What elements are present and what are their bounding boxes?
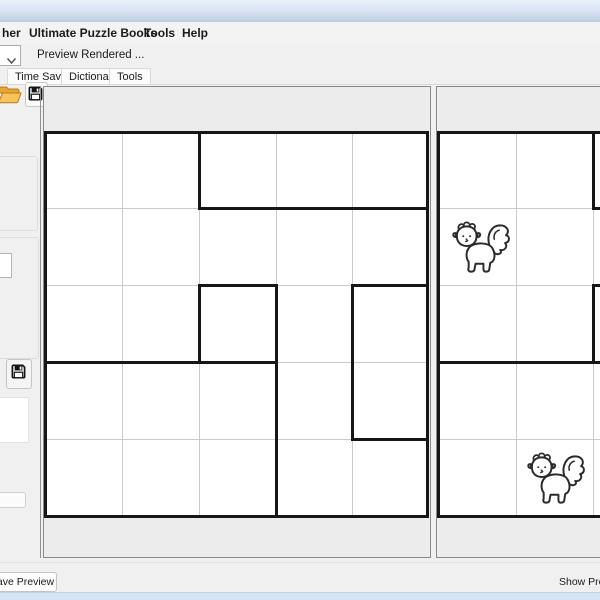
cage-border <box>437 131 600 134</box>
sidebar-groupbox-top <box>0 156 38 231</box>
left-puzzle-panel[interactable] <box>43 86 431 558</box>
sidebar-input[interactable] <box>0 253 12 278</box>
grid-line <box>438 208 600 209</box>
save-preview-button[interactable]: Save Preview <box>0 572 57 592</box>
cat-clipart <box>448 215 511 279</box>
menu-bar: her Ultimate Puzzle Books Tools Help <box>0 22 600 44</box>
grid-outer-border <box>44 131 429 518</box>
preview-rendered-label: Preview Rendered ... <box>37 44 144 66</box>
right-puzzle-panel[interactable] <box>436 86 600 558</box>
grid-line <box>516 132 517 516</box>
open-folder-button[interactable] <box>0 84 22 105</box>
sidebar-listbox[interactable] <box>0 397 29 443</box>
cage-border <box>437 515 600 518</box>
cage-border <box>437 131 440 518</box>
show-preview-button[interactable]: Show Preview <box>550 572 600 592</box>
cat-drawing <box>523 445 586 511</box>
status-strip <box>0 592 600 600</box>
bottom-divider <box>0 562 600 563</box>
cat-drawing <box>448 215 511 279</box>
preset-combobox[interactable] <box>0 45 21 66</box>
menu-item-publisher[interactable]: her <box>0 22 25 44</box>
sidebar-save-icon <box>10 362 27 381</box>
menu-item-help[interactable]: Help <box>178 22 212 44</box>
right-grid-canvas[interactable] <box>437 87 600 557</box>
cat-clipart <box>523 445 586 511</box>
save-icon <box>27 84 44 103</box>
cage-border <box>592 207 600 210</box>
sidebar-splitter[interactable] <box>40 86 41 558</box>
sidebar-small-button[interactable] <box>0 492 26 508</box>
grid-line <box>438 439 600 440</box>
cage-border <box>592 131 595 210</box>
sidebar-save-button[interactable] <box>6 359 32 389</box>
cage-border <box>592 284 600 287</box>
grid-line <box>438 285 600 286</box>
left-grid-canvas[interactable] <box>44 87 430 557</box>
menu-item-tools[interactable]: Tools <box>140 22 179 44</box>
tab-tools[interactable]: Tools <box>109 68 151 84</box>
cage-border <box>592 284 595 364</box>
open-folder-icon <box>0 84 22 105</box>
title-bar <box>0 0 600 22</box>
cage-border <box>437 361 600 364</box>
